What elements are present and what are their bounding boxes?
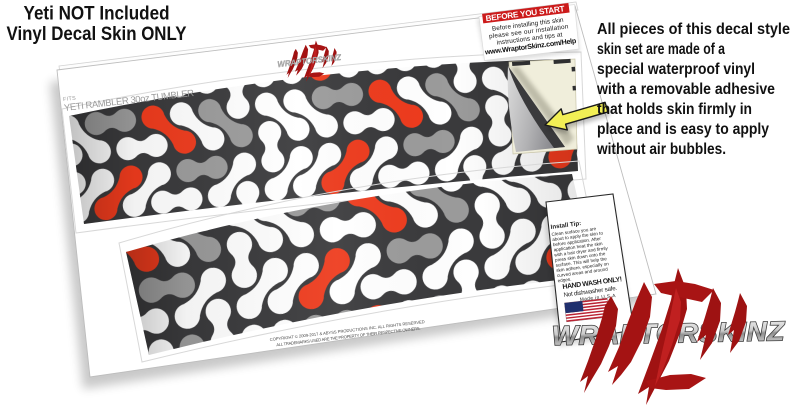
svg-text:skin set are made of a: skin set are made of a bbox=[597, 41, 725, 58]
svg-text:that holds skin firmly in: that holds skin firmly in bbox=[597, 101, 752, 118]
svg-text:Vinyl Decal Skin ONLY: Vinyl Decal Skin ONLY bbox=[7, 23, 187, 45]
svg-text:with a removable adhesive: with a removable adhesive bbox=[596, 81, 775, 98]
svg-text:place and is easy to apply: place and is easy to apply bbox=[597, 121, 769, 138]
svg-text:without air bubbles.: without air bubbles. bbox=[596, 141, 726, 158]
svg-text:All pieces of this decal style: All pieces of this decal style bbox=[597, 21, 790, 38]
svg-text:Yeti NOT Included: Yeti NOT Included bbox=[24, 3, 170, 25]
svg-text:special waterproof vinyl: special waterproof vinyl bbox=[597, 61, 755, 78]
